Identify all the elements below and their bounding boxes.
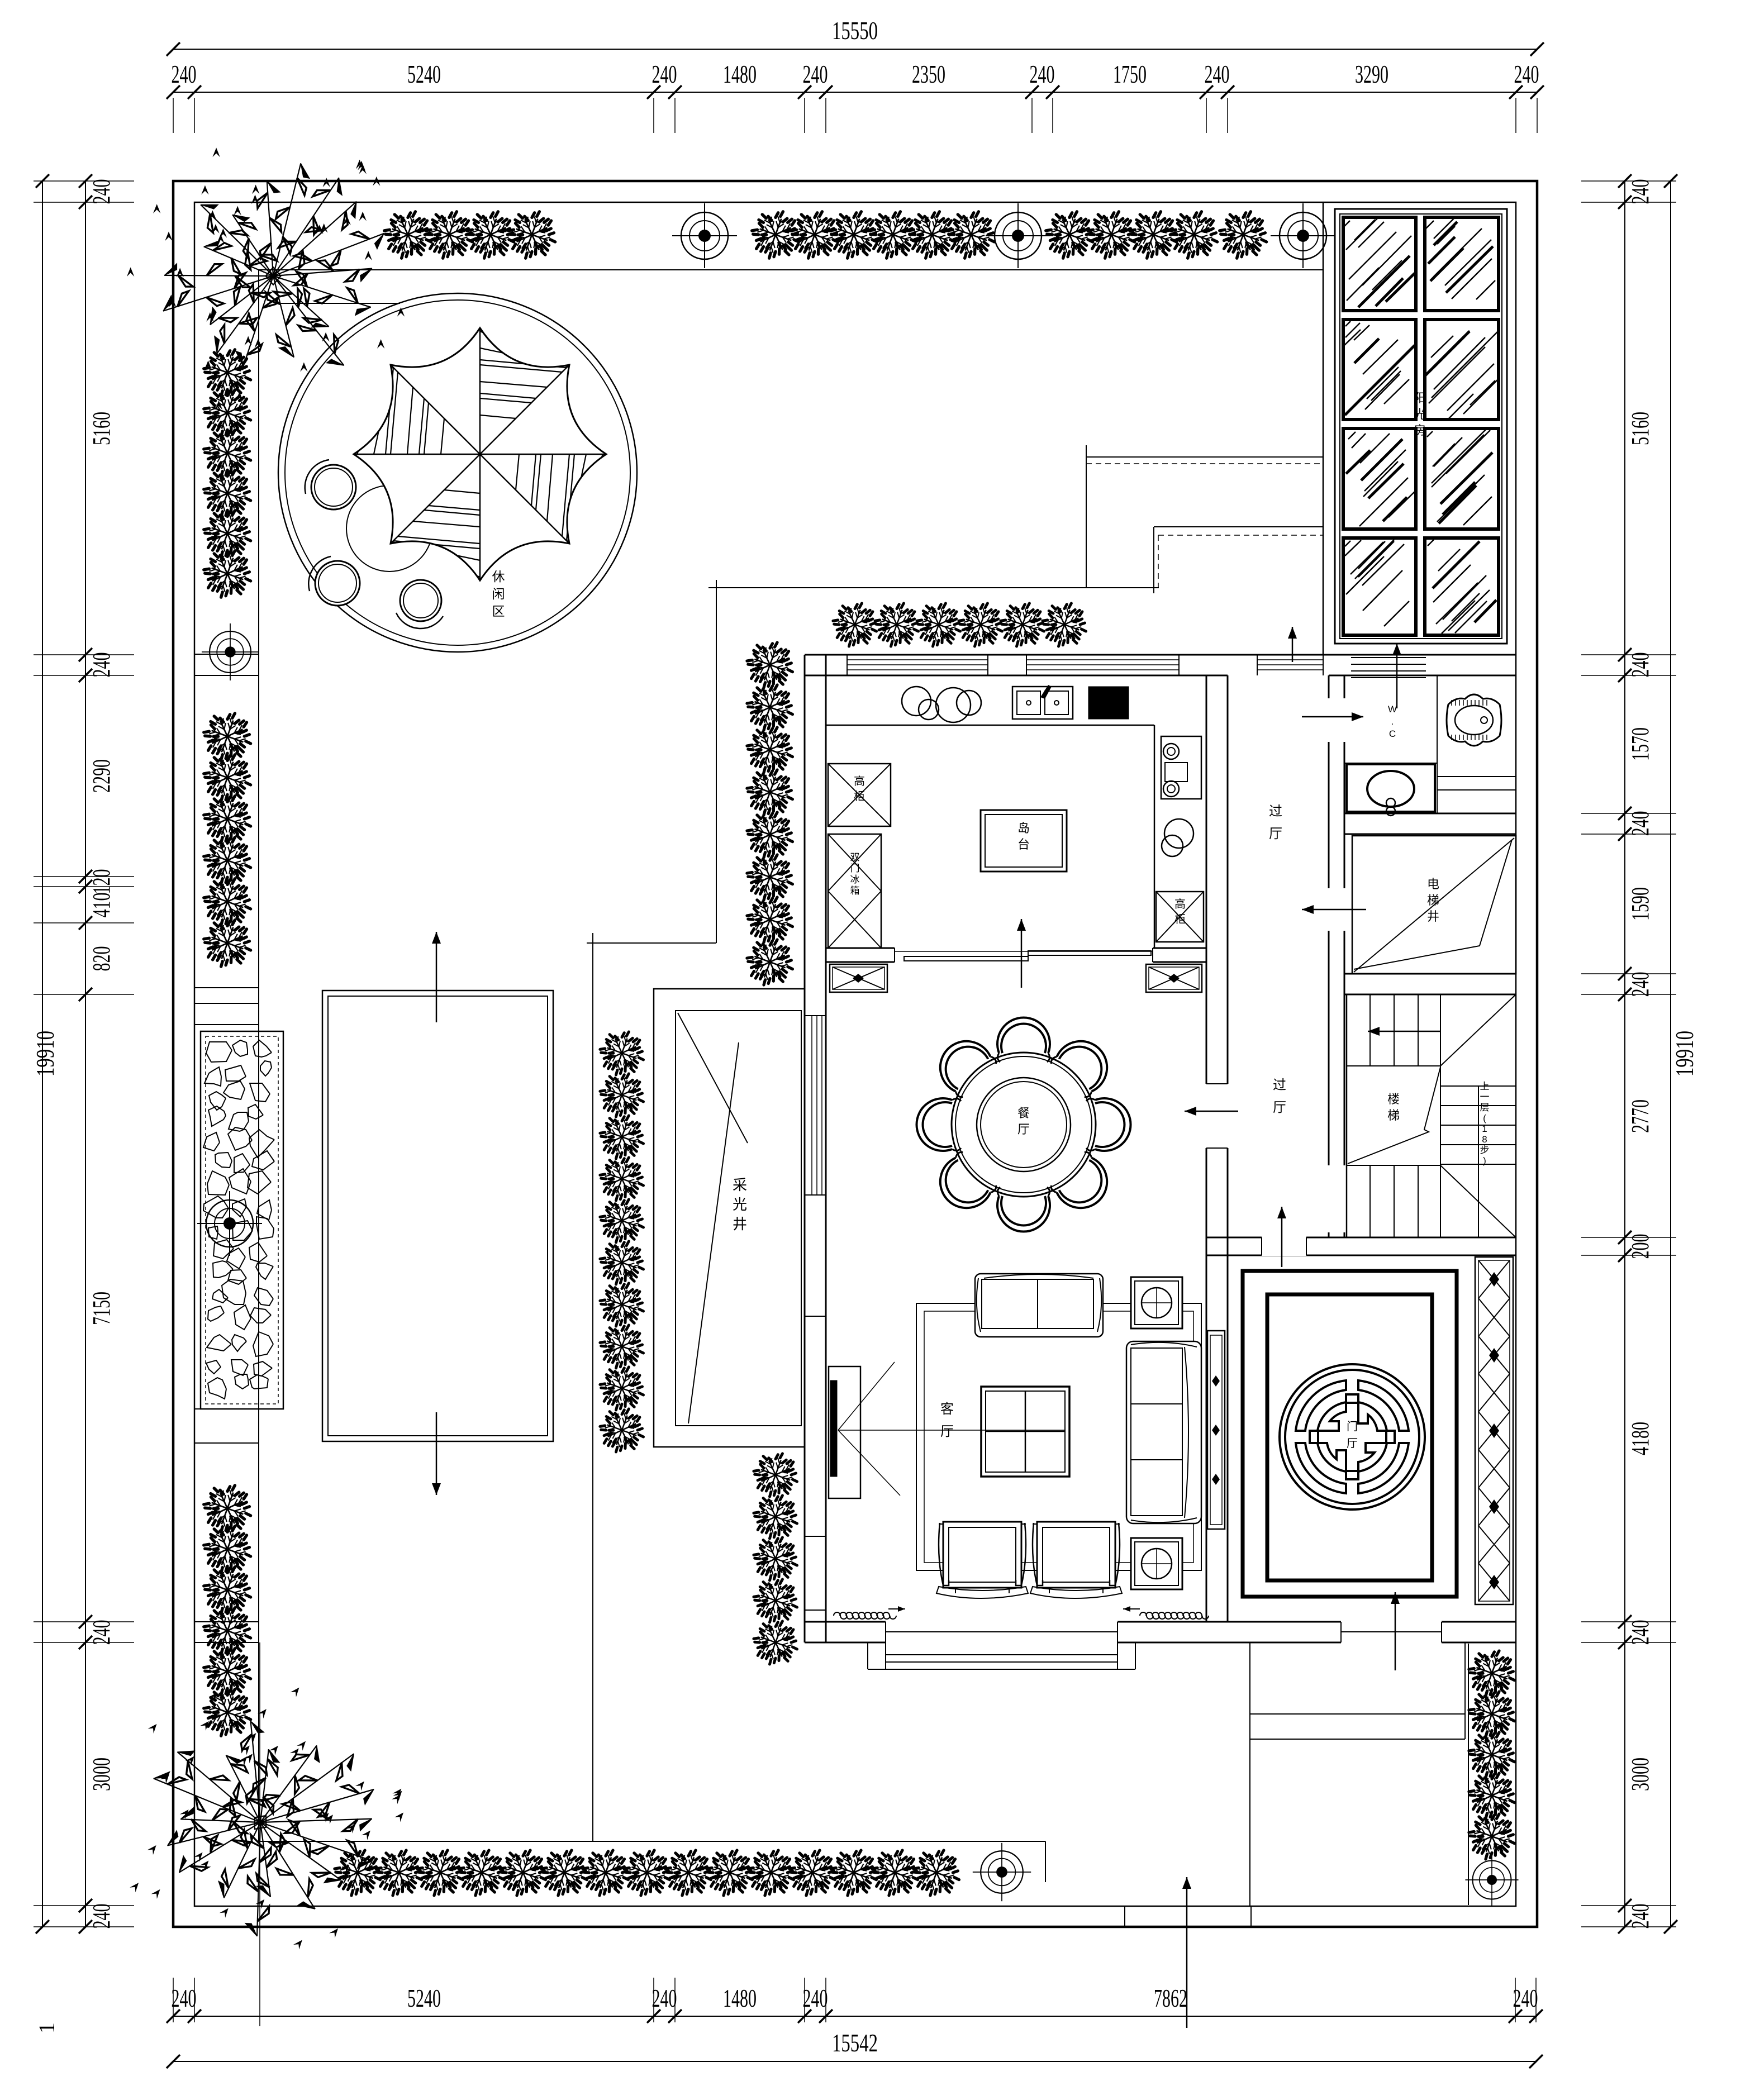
svg-text:240: 240 [803, 1984, 828, 2012]
svg-text:240: 240 [652, 1984, 677, 2012]
svg-text:240: 240 [1514, 60, 1539, 88]
svg-text:240: 240 [88, 1904, 115, 1929]
svg-text:240: 240 [88, 1620, 115, 1645]
svg-text:3000: 3000 [88, 1758, 115, 1791]
svg-text:5240: 5240 [407, 1984, 441, 2012]
svg-text:5160: 5160 [88, 412, 115, 445]
svg-text:240: 240 [1627, 811, 1654, 836]
svg-text:410: 410 [88, 893, 115, 918]
svg-text:15550: 15550 [832, 16, 878, 45]
svg-text:3000: 3000 [1627, 1758, 1654, 1791]
svg-text:240: 240 [88, 179, 115, 204]
svg-text:240: 240 [1627, 1620, 1654, 1645]
svg-text:240: 240 [1627, 653, 1654, 678]
svg-text:1480: 1480 [723, 60, 757, 88]
svg-text:电梯井: 电梯井 [1427, 877, 1439, 923]
svg-text:休闲区: 休闲区 [492, 569, 505, 618]
svg-text:19910: 19910 [31, 1031, 59, 1077]
svg-text:240: 240 [88, 653, 115, 678]
svg-text:1750: 1750 [1113, 60, 1147, 88]
svg-text:19910: 19910 [1670, 1031, 1699, 1077]
svg-text:240: 240 [803, 60, 828, 88]
svg-text:240: 240 [1627, 972, 1654, 997]
svg-text:2290: 2290 [88, 759, 115, 793]
svg-text:1480: 1480 [723, 1984, 757, 2012]
svg-text:4180: 4180 [1627, 1422, 1654, 1455]
svg-text:5160: 5160 [1627, 412, 1654, 445]
svg-text:200: 200 [1627, 1234, 1654, 1259]
svg-text:7862: 7862 [1154, 1984, 1187, 2012]
svg-text:1570: 1570 [1627, 727, 1654, 761]
svg-text:15542: 15542 [832, 2028, 878, 2057]
svg-text:240: 240 [1627, 1904, 1654, 1929]
svg-text:7150: 7150 [88, 1292, 115, 1325]
svg-text:1590: 1590 [1627, 887, 1654, 921]
svg-text:5240: 5240 [407, 60, 441, 88]
svg-text:240: 240 [1627, 179, 1654, 204]
svg-text:双门冰箱: 双门冰箱 [850, 852, 860, 896]
svg-text:3290: 3290 [1355, 60, 1388, 88]
svg-text:240: 240 [172, 1984, 197, 2012]
svg-text:240: 240 [1513, 1984, 1538, 2012]
svg-text:2350: 2350 [912, 60, 945, 88]
svg-text:240: 240 [172, 60, 197, 88]
svg-text:240: 240 [1030, 60, 1055, 88]
svg-text:240: 240 [652, 60, 677, 88]
svg-text:820: 820 [88, 946, 115, 972]
svg-text:2770: 2770 [1627, 1099, 1654, 1133]
svg-text:120: 120 [88, 869, 115, 894]
svg-text:240: 240 [1205, 60, 1230, 88]
svg-text:阳光房: 阳光房 [1414, 391, 1426, 437]
svg-text:1: 1 [34, 2022, 59, 2034]
svg-text:采光井: 采光井 [733, 1177, 747, 1232]
